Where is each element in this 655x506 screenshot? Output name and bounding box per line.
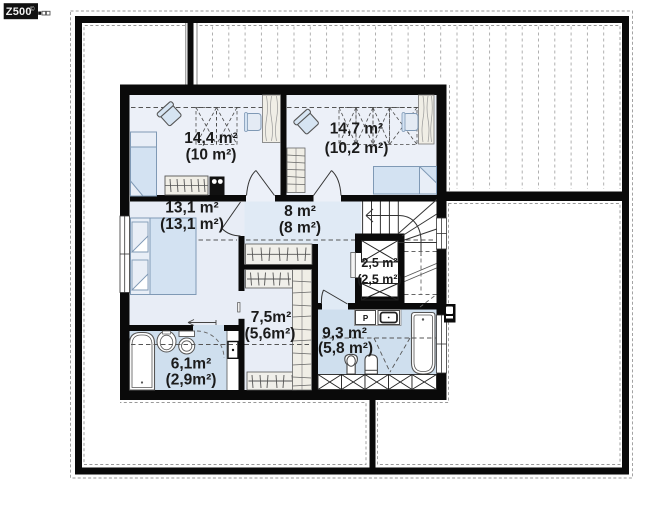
svg-text:Z500: Z500	[6, 6, 32, 18]
svg-text:(5,8 m²): (5,8 m²)	[318, 340, 373, 357]
svg-text:8 m²: 8 m²	[284, 203, 316, 220]
svg-text:P: P	[363, 314, 369, 323]
svg-text:(2,5 m²): (2,5 m²)	[357, 273, 401, 287]
svg-text:7,5m²: 7,5m²	[251, 309, 292, 326]
svg-text:(13,1 m²): (13,1 m²)	[160, 216, 224, 233]
svg-text:14,4 m²: 14,4 m²	[184, 130, 237, 147]
svg-text:(5,6m²): (5,6m²)	[245, 326, 296, 343]
svg-text:(8 m²): (8 m²)	[279, 220, 321, 237]
svg-text:14,7 m²: 14,7 m²	[330, 121, 383, 138]
svg-text:(10,2 m²): (10,2 m²)	[325, 140, 389, 157]
svg-text:6,1m²: 6,1m²	[171, 356, 212, 373]
svg-text:2,5 m²: 2,5 m²	[361, 256, 397, 270]
svg-text:13,1 m²: 13,1 m²	[165, 200, 218, 217]
svg-text:(2,9m²): (2,9m²)	[166, 372, 217, 389]
svg-text:©: ©	[30, 5, 35, 13]
svg-text:(10 m²): (10 m²)	[186, 147, 237, 164]
